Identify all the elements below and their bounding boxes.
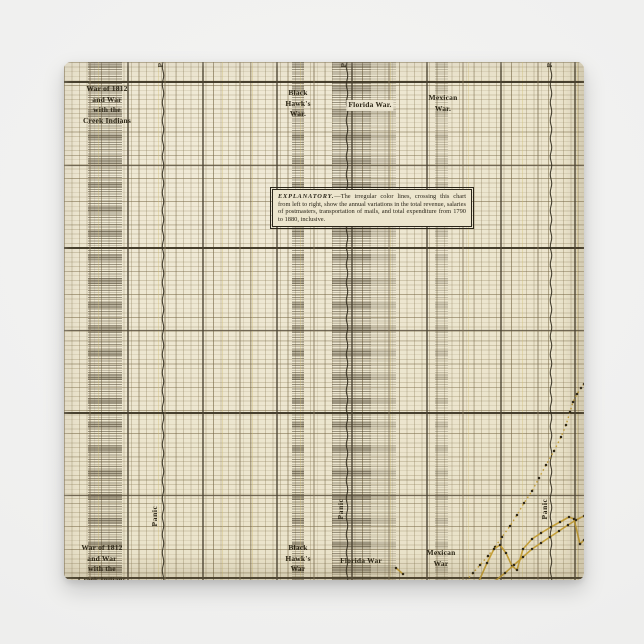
annotation-panic-vertical-clipped: Panic [545, 62, 555, 72]
annotation-line: and War [83, 95, 131, 106]
annotation-black-hawks-war-top: Black Hawk's War. [285, 88, 310, 120]
annotation-line: Creek Indians [83, 116, 131, 127]
annotation-panic-vertical: Panic [540, 494, 550, 524]
data-point [523, 502, 526, 505]
data-point [516, 514, 519, 517]
data-point [531, 490, 534, 493]
annotation-line: Hawk's [285, 554, 310, 565]
data-point [576, 393, 579, 396]
annotation-mexican-war-top: Mexican War. [429, 93, 458, 114]
annotation-panic-vertical-clipped: Panic [156, 62, 166, 72]
annotation-line: with the [78, 564, 126, 575]
data-point [522, 548, 525, 551]
annotation-panic-vertical-clipped: Panic [339, 62, 349, 72]
explanatory-box: EXPLANATORY.—The irregular color lines, … [272, 189, 472, 227]
annotation-line: Mexican [429, 93, 458, 104]
data-point [493, 548, 496, 551]
data-point [545, 464, 548, 467]
annotation-line: Creek Indians [78, 575, 126, 581]
panic-wavy-line [162, 62, 163, 580]
chart-paper: War of 1812 and War with the Creek India… [64, 62, 584, 580]
data-point [395, 567, 398, 570]
annotation-line: Black [285, 543, 310, 554]
panic-wavy-line [550, 62, 551, 580]
annotation-panic-vertical: Panic [150, 501, 160, 531]
annotation-florida-war-top: Florida War. [346, 100, 393, 111]
annotation-line: and War [78, 554, 126, 565]
data-point [505, 552, 508, 555]
data-point [560, 436, 563, 439]
data-point [487, 555, 490, 558]
data-point [479, 564, 482, 567]
annotation-line: with the [83, 105, 131, 116]
data-point [565, 424, 568, 427]
data-point [522, 556, 525, 559]
data-point [575, 519, 578, 522]
annotation-line: War of 1812 [83, 84, 131, 95]
data-point [499, 544, 502, 547]
data-point [540, 542, 543, 545]
gridlines-and-data-overlay [64, 62, 584, 580]
annotation-mexican-war-bottom: Mexican War [427, 548, 456, 569]
annotation-line: War [285, 564, 310, 575]
data-point [567, 524, 570, 527]
data-point [579, 543, 582, 546]
data-point [402, 573, 405, 576]
data-point [538, 477, 541, 480]
data-point [569, 411, 572, 414]
data-point [559, 521, 562, 524]
data-point [558, 530, 561, 533]
data-point [509, 525, 512, 528]
annotation-florida-war-bottom: Florida War [340, 556, 382, 567]
annotation-line: War [427, 559, 456, 570]
annotation-line: Black [285, 88, 310, 99]
annotation-line: Mexican [427, 548, 456, 559]
data-point [486, 562, 489, 565]
data-point [540, 532, 543, 535]
data-point [580, 387, 583, 390]
data-point [531, 538, 534, 541]
annotation-panic-vertical: Panic [336, 494, 346, 524]
annotation-line: Hawk's [285, 99, 310, 110]
annotation-war-of-1812-top: War of 1812 and War with the Creek India… [83, 84, 131, 126]
data-point [549, 536, 552, 539]
data-series-gold-solid-lower [495, 516, 584, 580]
annotation-line: War. [429, 104, 458, 115]
annotation-line: War. [285, 109, 310, 120]
product-photo-background: War of 1812 and War with the Creek India… [0, 0, 644, 644]
annotation-war-of-1812-bottom: War of 1812 and War with the Creek India… [78, 543, 126, 580]
data-point [572, 401, 575, 404]
annotation-line: War of 1812 [78, 543, 126, 554]
data-series-gold-start-tick [396, 568, 403, 574]
data-point [516, 569, 519, 572]
explanatory-heading: EXPLANATORY. [278, 193, 334, 200]
data-point [513, 564, 516, 567]
data-point [504, 572, 507, 575]
data-point [553, 450, 556, 453]
data-point [568, 516, 571, 519]
data-point [472, 572, 475, 575]
data-point [550, 526, 553, 529]
annotation-black-hawks-war-bottom: Black Hawk's War [285, 543, 310, 575]
data-point [501, 536, 504, 539]
data-point [531, 548, 534, 551]
panic-wavy-line [346, 62, 347, 580]
